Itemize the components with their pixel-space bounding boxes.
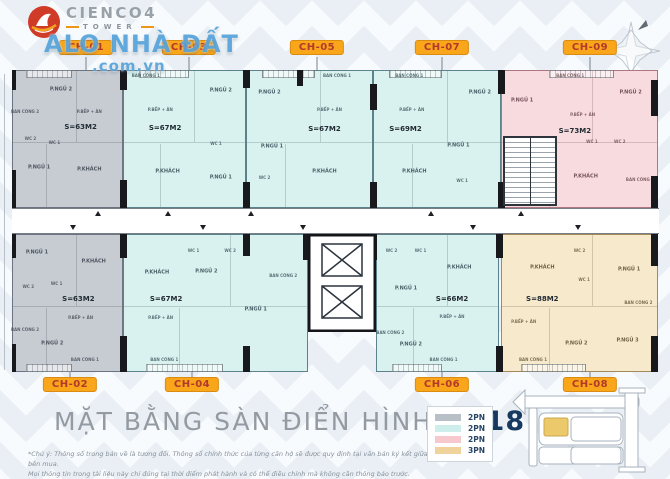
corridor	[12, 208, 659, 234]
legend-swatch	[435, 425, 461, 432]
unit-CH-02: S=63M2P.NGỦ 1P.KHÁCHWC 2WC 1P.BẾP + ĂNBA…	[12, 234, 123, 372]
room-label: BAN CÔNG 1	[71, 357, 99, 363]
balcony-strip	[521, 364, 586, 372]
room-label: P.BẾP + ĂN	[399, 108, 424, 114]
room-label: WC 2	[386, 249, 398, 255]
wall-segment	[243, 346, 250, 372]
room-label: WC 1	[51, 281, 63, 287]
unit-CH-08: S=88M2P.KHÁCHWC 2WC 1P.NGỦ 1BAN CÔNG 2P.…	[501, 234, 658, 372]
room-divider-line	[377, 306, 498, 307]
unit-area-label: S=67M2	[149, 124, 181, 132]
brand-name: CIENCO4	[66, 4, 157, 22]
wall-segment	[12, 70, 16, 90]
room-label: WC 2	[614, 139, 626, 145]
balcony-strip	[26, 70, 72, 78]
room-label: P.KHÁCH	[573, 174, 597, 181]
room-label: P.KHÁCH	[312, 168, 336, 175]
legend-swatch	[435, 414, 461, 421]
room-divider-line	[549, 308, 550, 371]
unit-area-label: S=88M2	[526, 295, 558, 303]
room-divider-line	[374, 142, 500, 143]
room-divider-line	[46, 144, 47, 207]
room-divider-line	[247, 142, 372, 143]
wall-segment	[12, 234, 16, 258]
room-divider-line	[592, 235, 593, 306]
room-divider-line	[76, 71, 77, 142]
tower-rule-right	[141, 26, 154, 28]
room-label: BAN CÔNG 1	[395, 74, 423, 80]
room-label: P.NGỦ 1	[210, 175, 232, 182]
unit-area-label: S=67M2	[308, 125, 340, 133]
wall-segment	[120, 336, 127, 372]
room-label: P.BẾP + ĂN	[68, 315, 93, 321]
legend-swatch	[435, 436, 461, 443]
legend-swatch	[435, 447, 461, 454]
unit-tag-connector	[189, 57, 190, 70]
wall-segment	[243, 70, 250, 88]
room-label: P.NGỦ 2	[195, 268, 217, 275]
door-marker	[248, 211, 254, 216]
room-label: P.NGỦ 1	[618, 267, 640, 274]
wall-segment	[496, 346, 503, 372]
legend-item: 2PN	[435, 435, 485, 444]
room-divider-line	[160, 144, 161, 207]
door-marker	[428, 211, 434, 216]
footnote: *Chú ý: Thông số trong bản vẽ là tương đ…	[28, 449, 468, 479]
wall-segment	[651, 176, 658, 208]
legend: 2PN2PN2PN3PN	[427, 406, 493, 462]
door-marker	[70, 225, 76, 230]
room-label: WC 2	[22, 284, 34, 290]
room-label: P.BẾP + ĂN	[511, 319, 536, 325]
room-label: P.KHÁCH	[145, 270, 169, 277]
unit-CH-05: S=67M2P.NGỦ 2BAN CÔNG 1P.BẾP + ĂNP.NGỦ 1…	[246, 70, 373, 208]
room-label: BAN CÔNG 1	[556, 74, 584, 80]
wall-segment	[297, 70, 303, 86]
room-label: BAN CÔNG 2	[626, 177, 654, 183]
door-marker	[518, 211, 524, 216]
door-marker	[575, 225, 581, 230]
room-divider-line	[447, 71, 448, 142]
balcony-strip	[146, 364, 223, 372]
room-label: P.BẾP + ĂN	[570, 112, 595, 118]
unit-tag-CH-06: CH-06	[415, 377, 469, 392]
room-label: P.KHÁCH	[402, 168, 426, 175]
room-label: P.NGỦ 3	[616, 338, 638, 345]
room-label: P.BẾP + ĂN	[148, 108, 173, 114]
room-label: P.BẾP + ĂN	[148, 315, 173, 321]
unit-CH-04: S=67M2WC 1WC 2P.KHÁCHP.NGỦ 2BAN CÔNG 2P.…	[123, 234, 308, 372]
room-label: P.NGỦ 2	[258, 89, 280, 96]
room-label: P.NGỦ 2	[620, 89, 642, 96]
watermark-line1: ALO NHÀ ĐẤT	[44, 30, 239, 58]
unit-CH-06: S=66M2WC 2WC 1P.KHÁCHP.NGỦ 1P.BẾP + ĂNBA…	[376, 234, 499, 372]
unit-area-label: S=69M2	[389, 125, 421, 133]
balcony-strip	[392, 364, 443, 372]
wall-segment	[651, 80, 658, 116]
unit-tag-CH-02: CH-02	[43, 377, 97, 392]
title-main: MẶT BẰNG SÀN ĐIỂN HÌNH	[54, 407, 433, 436]
room-label: P.KHÁCH	[77, 167, 101, 174]
wall-segment	[651, 336, 658, 372]
footnote-line2: Mọi thông tin trong tài liệu này chỉ đún…	[28, 469, 468, 479]
legend-label: 2PN	[468, 413, 485, 422]
room-label: P.NGỦ 2	[400, 342, 422, 349]
unit-tag-CH-09: CH-09	[563, 40, 617, 55]
room-label: BAN CÔNG 1	[323, 74, 351, 80]
dimension-line	[4, 74, 5, 370]
unit-tag-connector	[86, 57, 87, 70]
balcony-strip	[26, 364, 72, 372]
room-label: BAN CÔNG 1	[150, 357, 178, 363]
site-map	[505, 386, 665, 478]
door-marker	[200, 225, 206, 230]
unit-area-label: S=73M2	[559, 127, 591, 135]
room-label: BAN CÔNG 2	[11, 327, 39, 333]
room-label: WC 2	[25, 136, 37, 142]
room-label: WC 1	[456, 178, 468, 184]
tower-rule-left	[66, 26, 79, 28]
unit-tag-connector	[442, 57, 443, 70]
room-label: BAN CÔNG 2	[624, 300, 652, 306]
wall-segment	[370, 182, 377, 208]
room-label: WC 1	[586, 139, 598, 145]
room-label: P.NGỦ 2	[469, 89, 491, 96]
room-label: BAN CÔNG 1	[430, 357, 458, 363]
room-divider-line	[230, 235, 231, 306]
room-label: P.BẾP + ĂN	[317, 108, 342, 114]
room-label: WC 2	[574, 249, 586, 255]
room-label: P.KHÁCH	[447, 264, 471, 271]
wall-segment	[243, 182, 250, 208]
wall-segment	[498, 70, 505, 94]
room-label: P.NGỦ 1	[261, 144, 283, 151]
unit-tag-CH-04: CH-04	[165, 377, 219, 392]
wall-segment	[243, 234, 250, 256]
legend-item: 2PN	[435, 424, 485, 433]
room-divider-line	[285, 144, 286, 207]
room-label: P.NGỦ 1	[28, 164, 50, 171]
room-divider-line	[194, 71, 195, 142]
room-divider-line	[124, 142, 245, 143]
unit-tag-CH-08: CH-08	[563, 377, 617, 392]
room-divider-line	[413, 308, 414, 371]
room-divider-line	[124, 306, 307, 307]
room-label: BAN CÔNG 1	[519, 357, 547, 363]
wall-segment	[120, 180, 127, 208]
room-label: P.KHÁCH	[530, 264, 554, 271]
room-label: WC 2	[259, 176, 271, 182]
room-label: BAN CÔNG 2	[376, 330, 404, 336]
legend-label: 3PN	[468, 446, 485, 455]
wall-segment	[12, 344, 16, 372]
room-label: P.NGỦ 2	[41, 340, 63, 347]
unit-area-label: S=66M2	[436, 295, 468, 303]
door-marker	[165, 211, 171, 216]
wall-segment	[120, 234, 127, 258]
wall-segment	[496, 234, 503, 258]
room-label: P.NGỦ 1	[447, 142, 469, 149]
door-marker	[300, 225, 306, 230]
unit-tag-connector	[317, 57, 318, 70]
unit-CH-03: S=67M2BAN CÔNG 1P.BẾP + ĂNP.NGỦ 2WC 1P.K…	[123, 70, 246, 208]
room-divider-line	[179, 308, 180, 371]
footnote-line1: *Chú ý: Thông số trong bản vẽ là tương đ…	[28, 449, 468, 469]
room-label: WC 1	[210, 142, 222, 148]
room-divider-line	[502, 306, 657, 307]
door-marker	[470, 225, 476, 230]
room-label: P.NGỦ 1	[245, 306, 267, 313]
room-label: P.KHÁCH	[155, 168, 179, 175]
floor-plan-image: CIENCO4 TOWER ALO NHÀ ĐẤT .com.vn	[0, 0, 670, 479]
room-divider-line	[592, 71, 593, 142]
room-label: P.NGỦ 2	[50, 87, 72, 94]
room-divider-line	[412, 144, 413, 207]
room-label: P.NGỦ 2	[210, 88, 232, 95]
unit-CH-01: S=63M2P.NGỦ 2BAN CÔNG 2P.BẾP + ĂNWC 2WC …	[12, 70, 123, 208]
room-label: P.KHÁCH	[81, 259, 105, 266]
room-label: P.NGỦ 1	[511, 97, 533, 104]
unit-area-label: S=63M2	[64, 123, 96, 131]
room-label: P.BẾP + ĂN	[77, 109, 102, 115]
legend-label: 2PN	[468, 424, 485, 433]
wall-segment	[651, 234, 658, 266]
door-marker	[95, 211, 101, 216]
room-label: P.BẾP + ĂN	[440, 314, 465, 320]
room-label: WC 1	[578, 277, 590, 283]
wall-segment	[12, 170, 16, 208]
watermark-line2: .com.vn	[92, 57, 166, 75]
room-label: BAN CÔNG 2	[11, 109, 39, 115]
room-label: WC 1	[49, 140, 61, 146]
room-label: WC 1	[188, 249, 200, 255]
unit-tag-connector	[590, 57, 591, 70]
unit-CH-07: S=69M2BAN CÔNG 1P.BẾP + ĂNP.NGỦ 2P.NGỦ 1…	[373, 70, 501, 208]
unit-tag-CH-07: CH-07	[415, 40, 469, 55]
room-divider-line	[13, 306, 122, 307]
room-label: P.NGỦ 1	[26, 249, 48, 256]
legend-label: 2PN	[468, 435, 485, 444]
unit-area-label: S=67M2	[150, 295, 182, 303]
room-label: BAN CÔNG 2	[269, 273, 297, 279]
staircase	[503, 136, 557, 206]
legend-item: 3PN	[435, 446, 485, 455]
balcony-strip	[262, 70, 315, 78]
room-label: WC 1	[415, 249, 427, 255]
legend-item: 2PN	[435, 413, 485, 422]
unit-tag-CH-05: CH-05	[290, 40, 344, 55]
room-divider-line	[13, 142, 122, 143]
elevator-core	[308, 234, 376, 332]
wall-segment	[370, 84, 377, 110]
unit-area-label: S=63M2	[62, 295, 94, 303]
room-label: P.NGỦ 1	[395, 286, 417, 293]
room-label: WC 2	[224, 249, 236, 255]
room-label: P.NGỦ 2	[565, 340, 587, 347]
site-map-highlighted-building	[544, 418, 568, 436]
